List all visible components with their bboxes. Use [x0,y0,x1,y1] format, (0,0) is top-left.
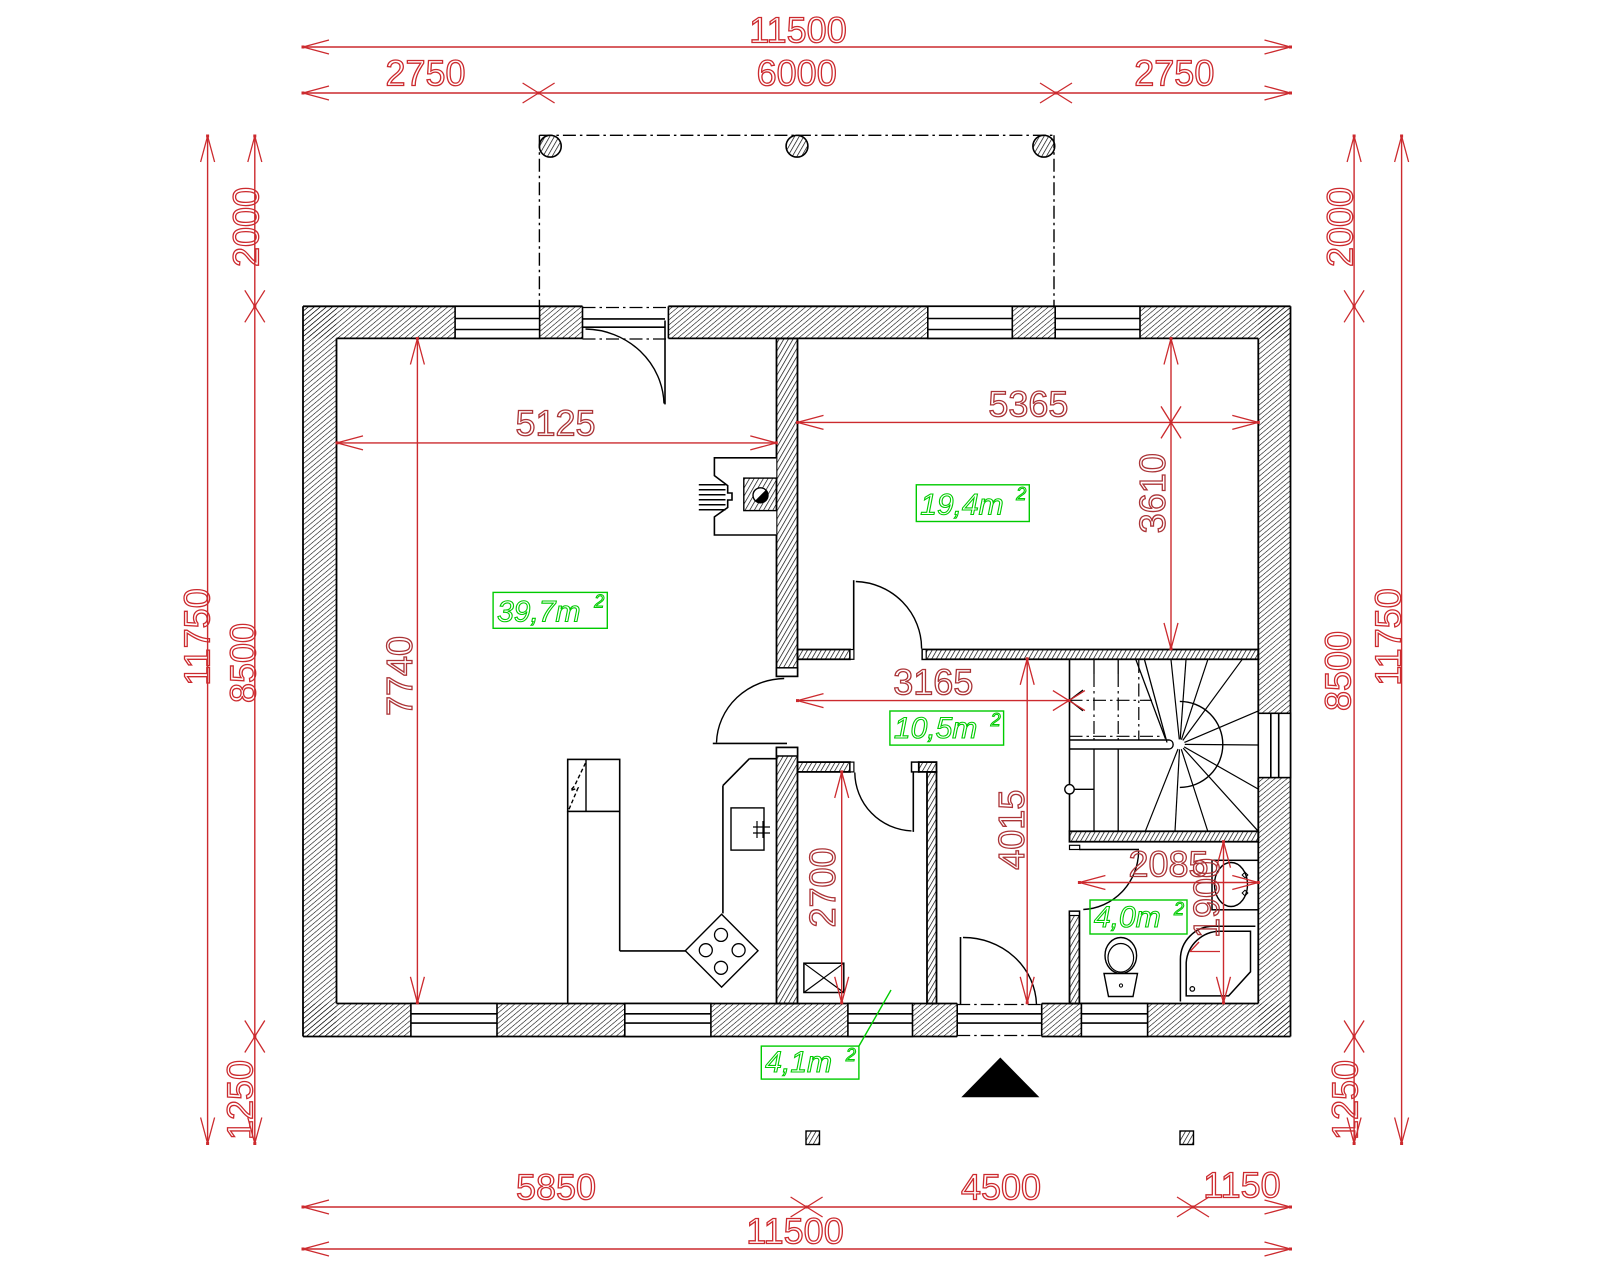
svg-text:2000: 2000 [226,187,267,267]
svg-text:11500: 11500 [746,1211,843,1252]
svg-text:2700: 2700 [802,847,843,927]
svg-text:6000: 6000 [757,53,837,94]
svg-text:2: 2 [1173,899,1184,919]
svg-text:3610: 3610 [1132,453,1173,533]
svg-text:5850: 5850 [516,1167,596,1208]
svg-text:2: 2 [1015,484,1026,504]
svg-text:1150: 1150 [1203,1165,1280,1206]
svg-text:11750: 11750 [1368,588,1409,685]
svg-text:2750: 2750 [385,53,465,94]
svg-text:11500: 11500 [749,10,846,51]
svg-text:5125: 5125 [515,403,595,444]
svg-text:1900: 1900 [1186,858,1227,938]
svg-text:2: 2 [845,1045,856,1065]
svg-text:2: 2 [593,591,604,611]
svg-text:3165: 3165 [893,662,973,703]
svg-text:4,1m: 4,1m [765,1046,832,1079]
svg-text:7740: 7740 [379,636,420,716]
svg-text:2750: 2750 [1134,53,1214,94]
svg-text:2: 2 [990,710,1001,730]
svg-text:4015: 4015 [991,790,1032,870]
svg-text:1250: 1250 [220,1060,261,1140]
svg-text:19,4m: 19,4m [920,489,1003,522]
svg-text:5365: 5365 [988,384,1068,425]
svg-text:4500: 4500 [961,1167,1041,1208]
svg-text:39,7m: 39,7m [497,595,580,628]
svg-text:2000: 2000 [1320,187,1361,267]
svg-text:8500: 8500 [223,623,264,703]
svg-text:8500: 8500 [1318,631,1359,711]
svg-text:11750: 11750 [177,588,218,685]
svg-text:10,5m: 10,5m [894,712,977,745]
svg-text:1250: 1250 [1325,1060,1366,1140]
svg-text:4,0m: 4,0m [1094,901,1161,934]
